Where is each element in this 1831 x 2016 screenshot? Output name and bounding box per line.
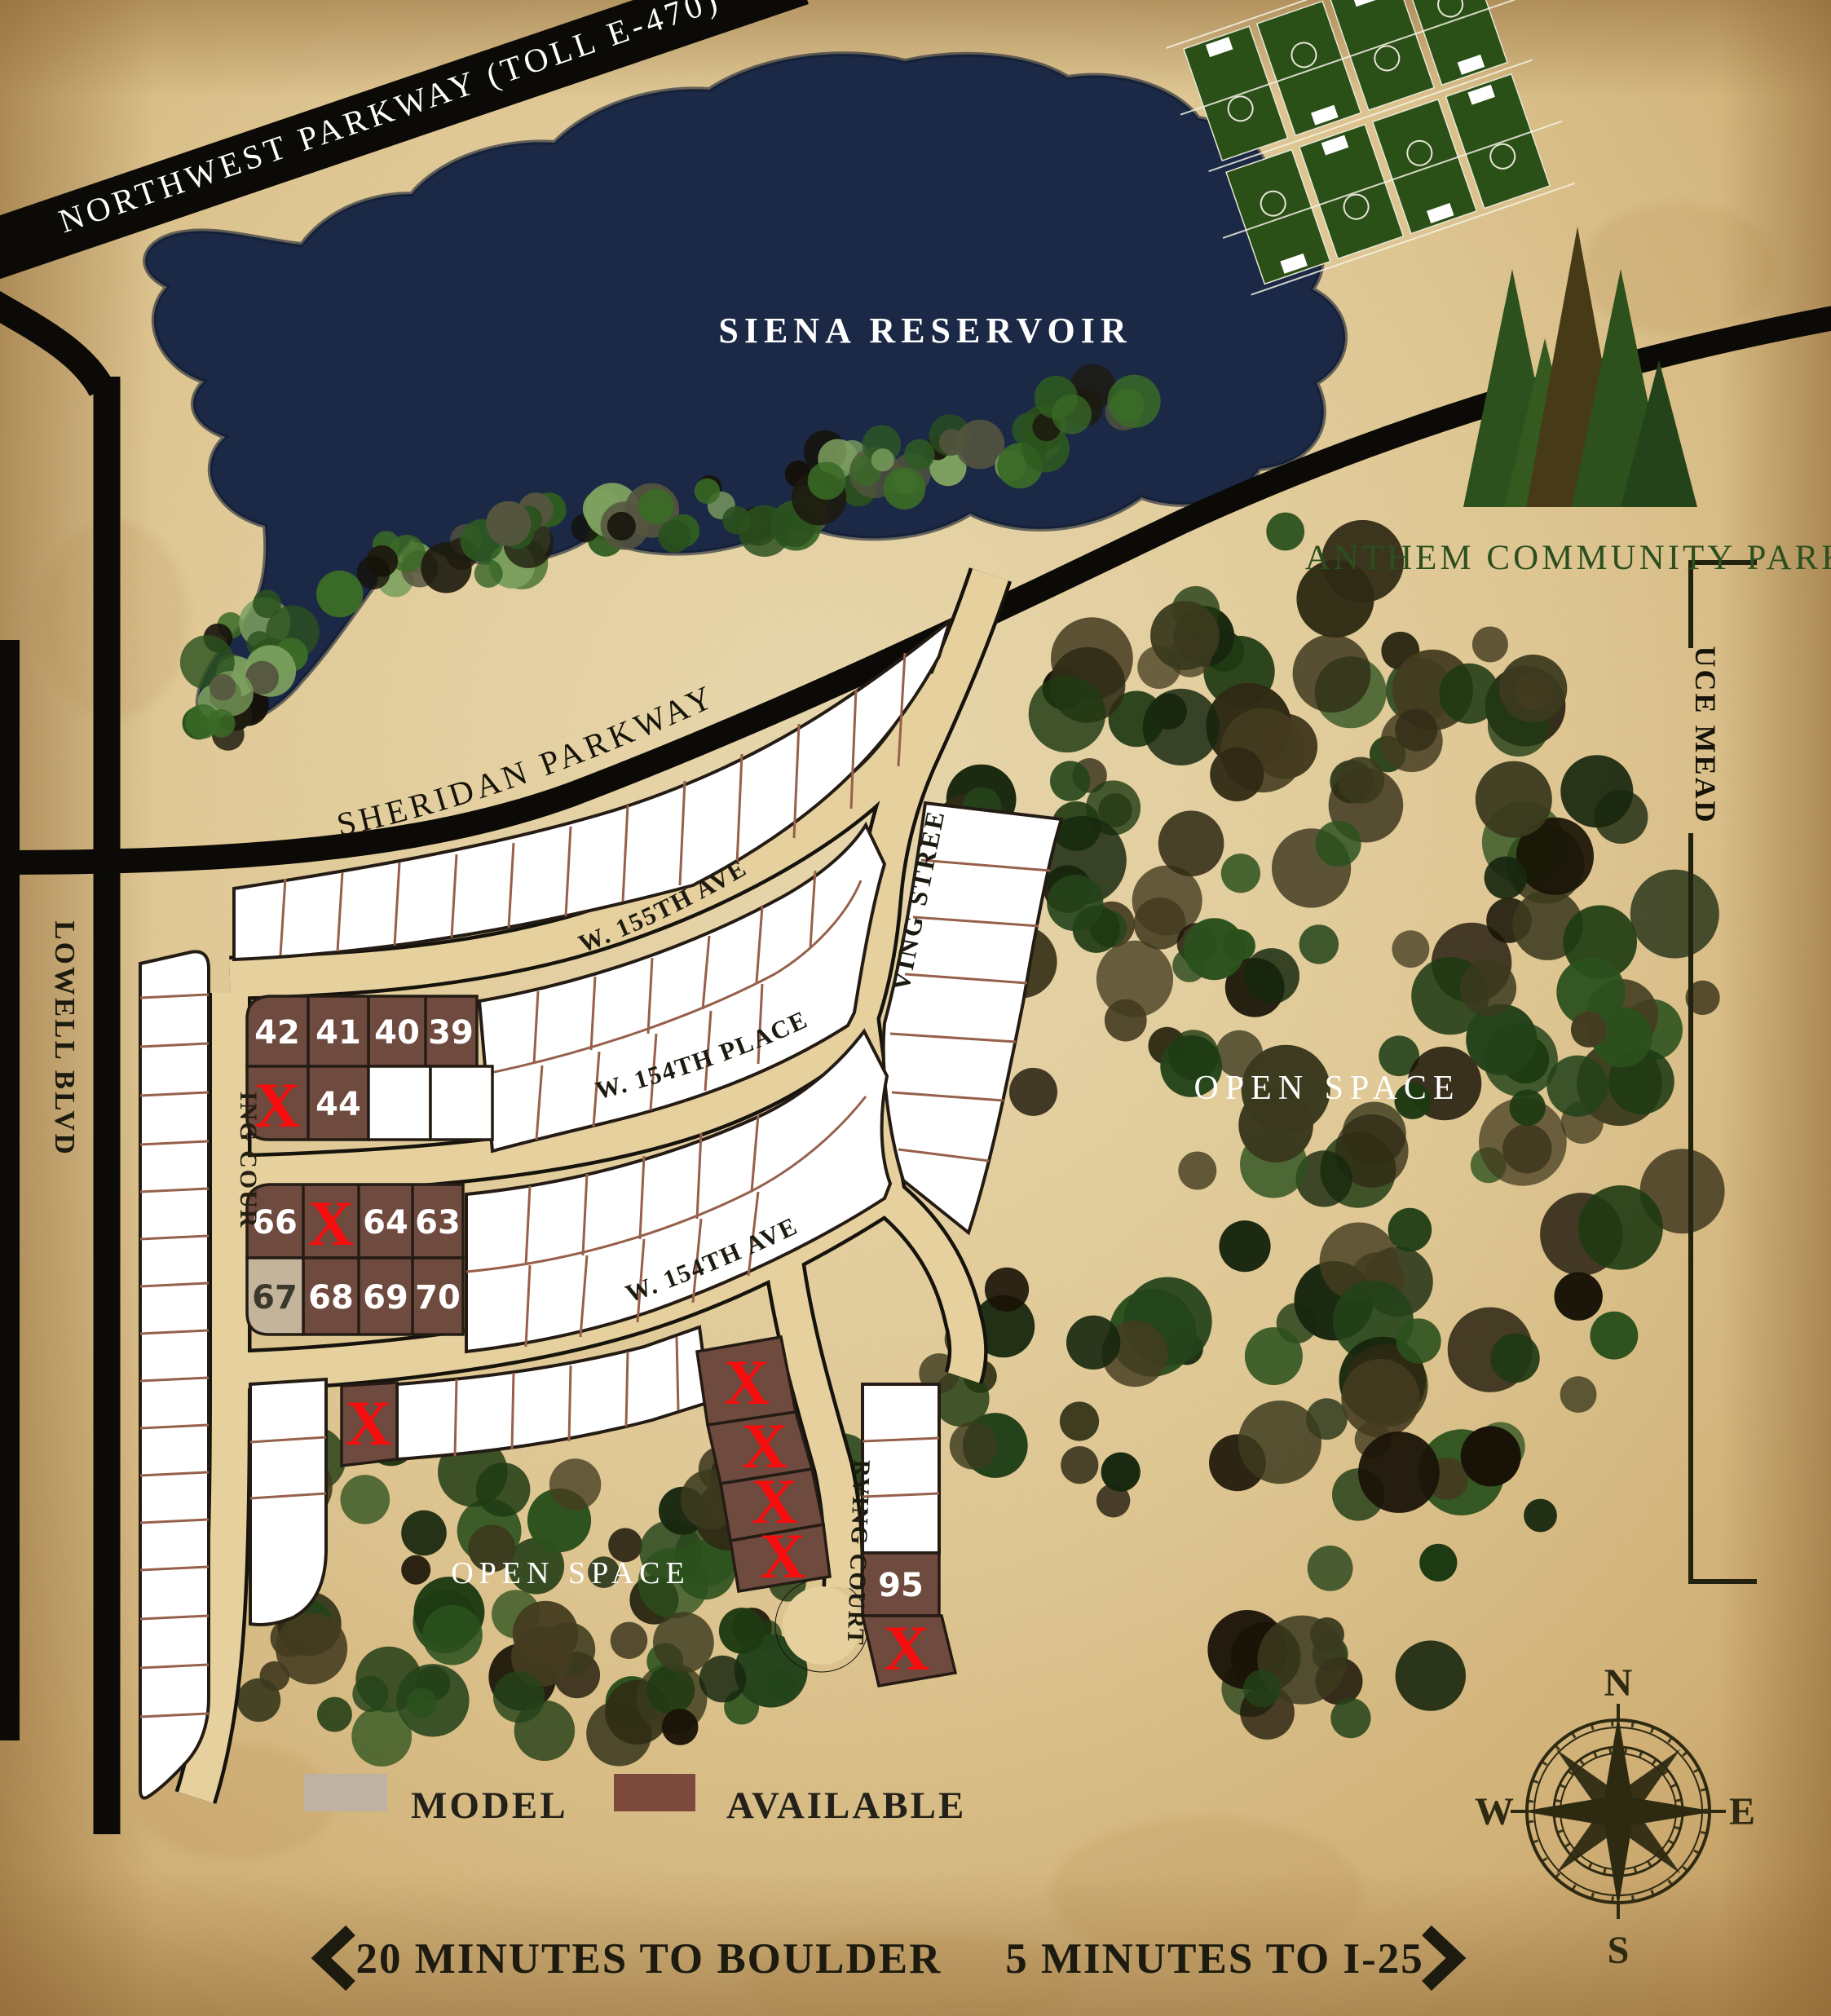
tree-blob [316,571,363,617]
tree-blob [1308,1546,1353,1591]
legend-available-label: AVAILABLE [726,1784,966,1827]
tree-blob [767,1670,796,1699]
tree-blob [210,674,236,701]
tree-blob [1591,1312,1639,1360]
tree-blob [1341,1359,1419,1437]
footer-banner: 20 MINUTES TO BOULDER 5 MINUTES TO I-25 [321,1930,1456,1986]
lot-44-label: 44 [315,1086,361,1123]
footer-boulder-label: 20 MINUTES TO BOULDER [356,1935,942,1983]
lowell-blvd-label: LOWELL BLVD [49,920,81,1157]
tree-blob [1009,1068,1057,1116]
tree-blob [1221,854,1260,893]
tree-blob [904,439,935,470]
tree-blob [939,429,965,455]
tree-blob [1472,627,1508,663]
lot-67-label: 67 [252,1279,298,1317]
lot-95-label: 95 [878,1567,924,1604]
tree-blob [1395,709,1437,752]
tree-blob [1178,1152,1216,1190]
lot-column-west [140,951,209,1798]
tree-blob [1460,959,1516,1016]
legend-model-label: MODEL [411,1784,568,1827]
tree-blob [1184,918,1246,980]
tree-blob [638,489,674,525]
open-space-right-label: OPEN SPACE [1193,1070,1460,1107]
tree-blob [699,1656,747,1703]
tree-blob [1266,513,1304,551]
sold-x-mark: X [760,1520,805,1591]
sold-x-mark: X [724,1347,770,1418]
tree-blob [1210,748,1264,801]
tree-blob [1158,810,1224,876]
lot-70-label: 70 [415,1279,461,1317]
sold-x-mark: X [884,1612,929,1683]
tree-blob [1299,924,1339,964]
svg-text:LOWELL BLVD: LOWELL BLVD [49,920,81,1157]
tree-blob [401,1511,447,1556]
tree-blob [341,1475,390,1524]
tree-blob [611,1622,647,1659]
tree-blob [1466,1004,1537,1075]
tree-blob [1516,673,1553,711]
tree-blob [1338,757,1384,804]
tree-blob [662,1709,699,1745]
lot-69-label: 69 [363,1279,408,1317]
community-site-map: SIENA RESERVOIR [0,0,1831,2016]
tree-blob [1050,761,1090,801]
tree-blob [1578,1185,1663,1270]
tree-blob [253,589,281,618]
tree-blob [808,461,846,500]
tree-blob [1060,1401,1099,1440]
sold-x-mark: X [308,1188,354,1259]
tree-blob [351,1706,412,1767]
lot-40-label: 40 [374,1014,420,1052]
tree-blob [1358,1431,1440,1513]
lot-column-kingcourt [250,1379,326,1625]
tree-blob [1293,634,1371,712]
tree-blob [1245,1327,1303,1385]
tree-blob [1524,1499,1557,1533]
compass-south-label: S [1608,1929,1630,1972]
tree-blob [1630,870,1719,959]
tree-blob [1243,1670,1281,1707]
tree-blob [719,1608,765,1654]
tree-blob [1476,761,1552,838]
tree-blob [1555,1273,1603,1321]
tree-blob [1219,1220,1270,1272]
tree-blob [1595,790,1648,844]
tree-blob [352,1676,388,1712]
lot-39-label: 39 [428,1014,474,1052]
tree-blob [1052,395,1092,435]
tree-blob [1029,676,1105,752]
tree-blob [985,1268,1029,1312]
tree-blob [1461,1426,1521,1486]
footer-i25-label: 5 MINUTES TO I-25 [1005,1935,1424,1983]
tree-blob [1388,1208,1432,1252]
tree-blob [1485,857,1527,899]
sold-x-mark: X [346,1387,391,1458]
tree-blob [1396,1318,1441,1363]
lot-63-label: 63 [415,1204,461,1242]
open-space-left-label: OPEN SPACE [451,1556,690,1590]
reservoir-label: SIENA RESERVOIR [718,311,1132,351]
legend-model-swatch [304,1774,387,1811]
tree-blob [407,1688,437,1718]
tree-blob [1560,1376,1597,1413]
tree-blob [871,448,894,471]
lot-42-label: 42 [254,1014,300,1052]
tree-blob [486,501,531,546]
tree-blob [1510,1090,1546,1126]
tree-blob [646,1665,695,1714]
tree-blob [422,1605,483,1665]
tree-blob [722,506,750,534]
lot-64-label: 64 [363,1204,408,1242]
tree-blob [1315,821,1361,867]
tree-blob [1392,930,1430,968]
tree-blob [1143,689,1220,765]
tree-blob [950,1422,998,1470]
tree-blob [1105,999,1147,1042]
tree-blob [401,1555,430,1585]
tree-blob [1101,1453,1141,1492]
tree-blob [1047,875,1103,931]
tree-blob [1244,948,1299,1004]
tree-blob [1066,1316,1120,1370]
tree-blob [549,1458,601,1510]
lot-68-label: 68 [308,1279,354,1317]
tree-blob [1330,1698,1370,1738]
tree-blob [1439,664,1499,724]
tree-blob [1546,1056,1608,1117]
tree-blob [357,556,390,589]
tree-blob [695,479,720,504]
tree-blob [1419,1544,1457,1581]
tree-blob [1061,1446,1098,1484]
tree-blob [493,1671,545,1723]
white-lot [368,1066,430,1140]
anthem-park-label: ANTHEM COMMUNITY PARK [1305,539,1831,577]
tree-blob [317,1697,352,1732]
legend-available-swatch [614,1774,695,1811]
compass-east-label: E [1729,1790,1755,1833]
tree-blob [1114,389,1145,420]
white-lot [430,1066,492,1140]
compass-west-label: W [1475,1790,1514,1833]
tree-blob [1490,1334,1540,1383]
tree-blob [207,709,236,738]
tree-blob [276,1612,347,1684]
tree-blob [884,467,926,510]
tree-blob [237,1679,280,1722]
tree-blob [1238,1401,1321,1484]
lot-41-label: 41 [315,1014,361,1052]
tree-blob [474,559,503,588]
tree-blob [476,1462,531,1517]
tree-blob [1396,1640,1466,1710]
compass-north-label: N [1604,1661,1633,1705]
tree-blob [1571,1012,1607,1048]
tree-blob [1150,601,1220,670]
tree-blob [607,512,636,540]
tree-blob [658,520,690,553]
map-canvas: SIENA RESERVOIR [0,0,1831,2016]
